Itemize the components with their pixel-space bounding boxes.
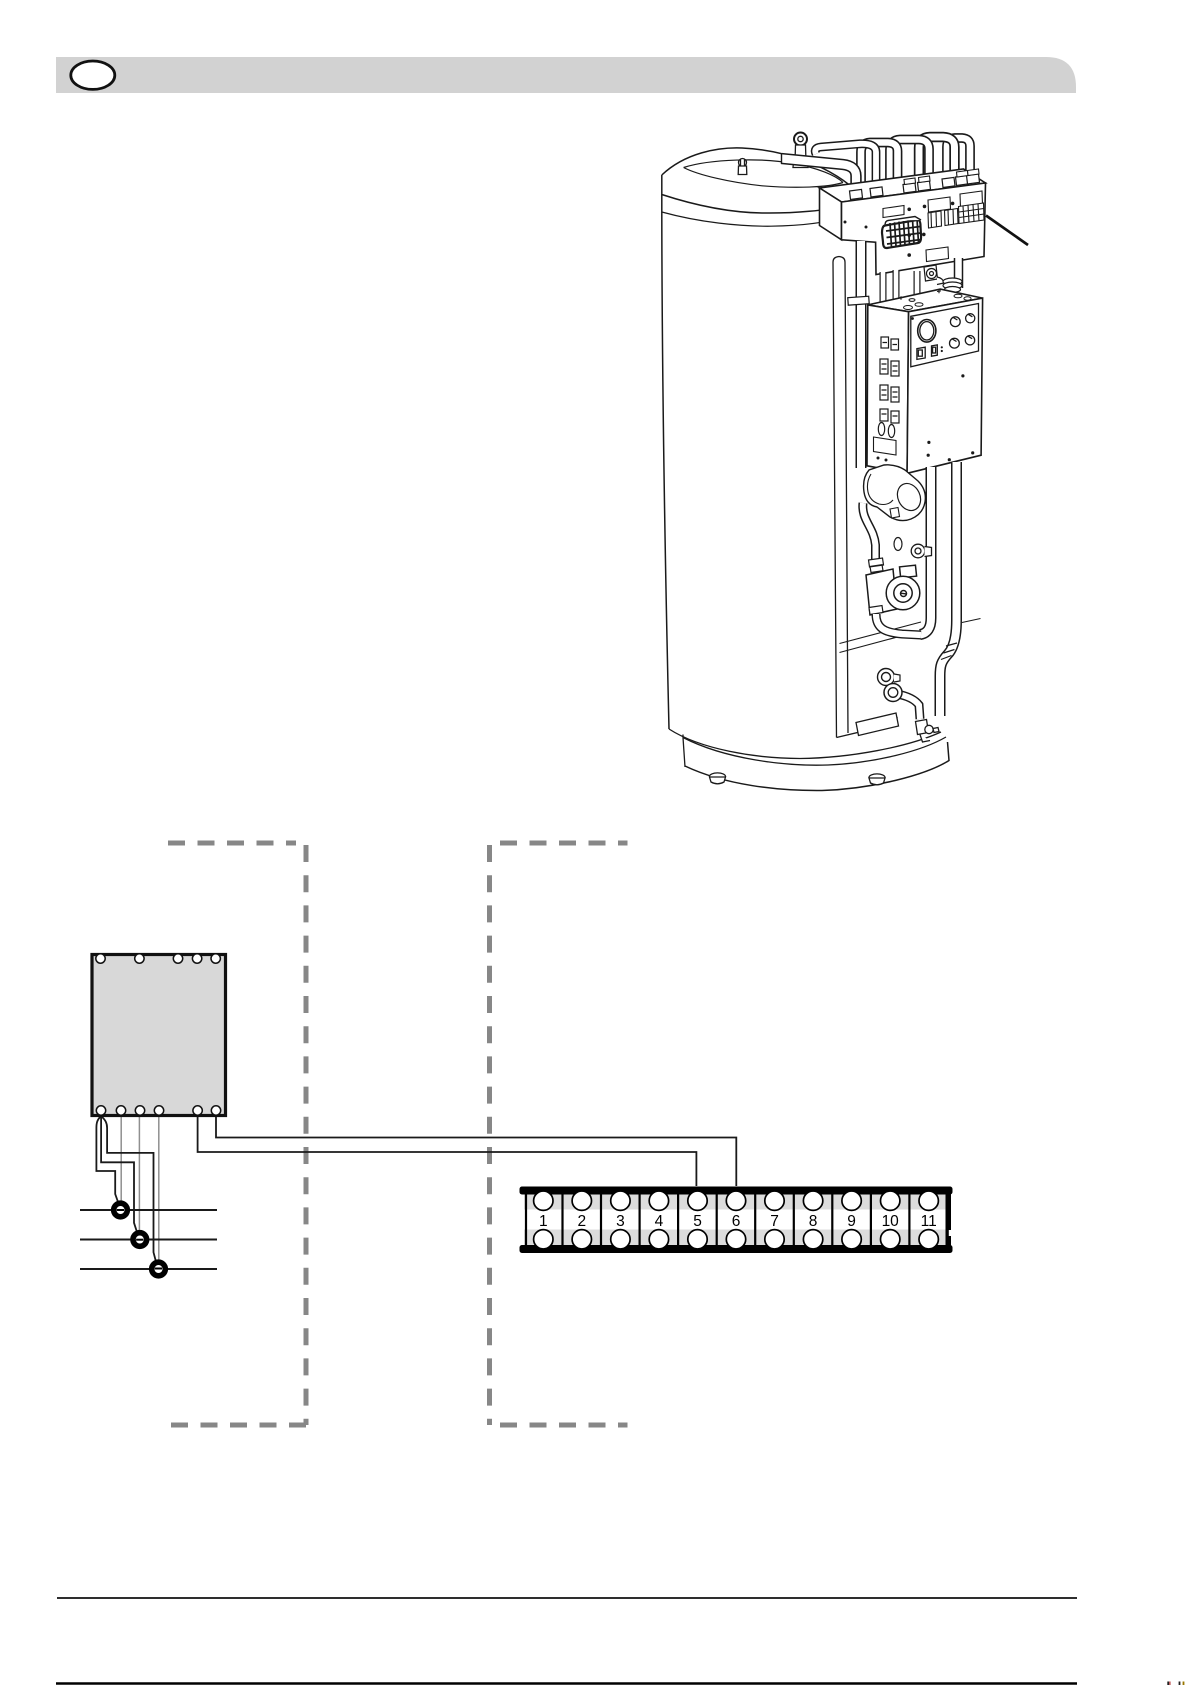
svg-text:10: 10 bbox=[882, 1213, 900, 1230]
svg-text:3: 3 bbox=[616, 1213, 625, 1230]
svg-text:5: 5 bbox=[693, 1213, 702, 1230]
svg-text:6: 6 bbox=[732, 1213, 741, 1230]
svg-text:9: 9 bbox=[847, 1213, 856, 1230]
svg-text:1: 1 bbox=[539, 1213, 548, 1230]
svg-text:2: 2 bbox=[577, 1213, 586, 1230]
svg-text:4: 4 bbox=[655, 1213, 664, 1230]
svg-text:7: 7 bbox=[770, 1213, 779, 1230]
svg-text:8: 8 bbox=[809, 1213, 818, 1230]
svg-text:11: 11 bbox=[921, 1213, 937, 1230]
